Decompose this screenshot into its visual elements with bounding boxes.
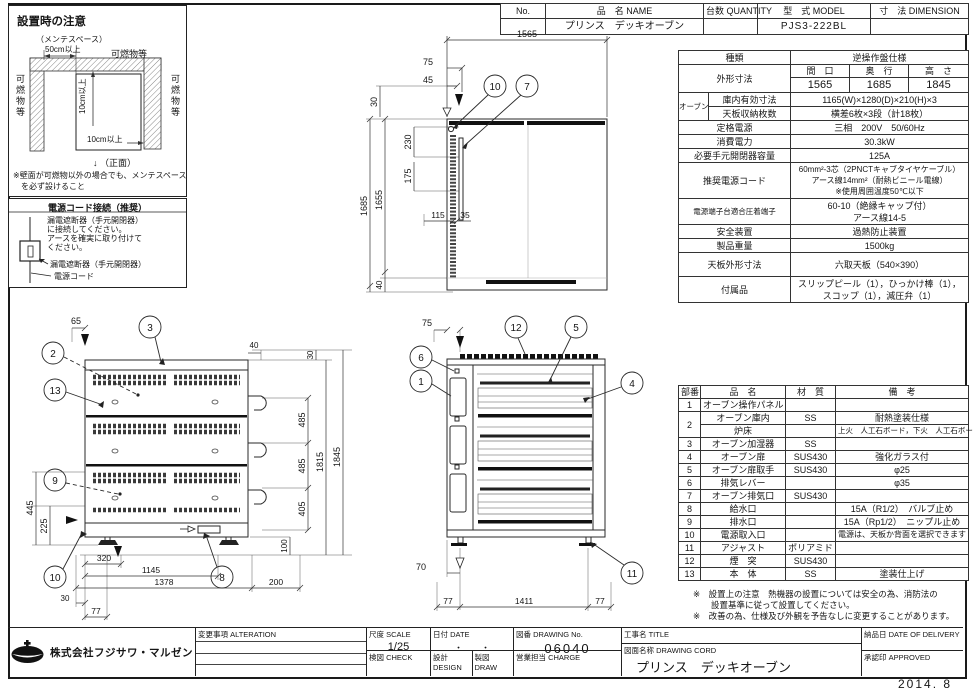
project-title-cell: 工事名 TITLE 図面名称 DRAWING CORD プリンス デッキオーブン [622,628,862,676]
space-50cm-label: 50cm以上 [45,44,81,55]
check-label: 検図 CHECK [367,651,430,664]
parts-header-mat: 材 質 [786,386,836,399]
parts-row-10: 10 電源取入口 電源は、天板か背面を選択できます [679,529,969,542]
company-name: 株式会社フジサワ・マルゼン [50,645,193,660]
spec-weight-label: 製品重量 [679,239,791,253]
company-logo-icon [10,640,46,664]
drawing-no-label: 図番 DRAWING No. [514,628,621,641]
power-cord-box: 電源コード接続（推奨） 漏電遮断器（手元開閉器） に接続してください。 アースを… [8,198,187,288]
spec-weight-value: 1500kg [791,239,969,253]
spec-top-plate-label: 天板外形寸法 [679,253,791,277]
plan-dim-1655: 1655 [374,190,384,210]
header-model: 型 式 MODEL [758,4,871,19]
spec-tray-label: 天板収納枚数 [709,107,791,121]
combustible-right-label: 可燃物等 [169,74,182,118]
front-callout-6: 6 [418,353,424,364]
spec-oven-label: オーブン [679,93,709,121]
spec-accessories-value-2: スコップ（1），減圧弁（1） [793,290,966,302]
rear-callout-10: 10 [49,573,61,584]
date-label: 日付 DATE [431,628,513,641]
parts-row-5: 5 オーブン扉取手 SUS430 φ25 [679,464,969,477]
plan-dim-115: 115 [431,210,445,220]
delivery-label: 納品日 DATE OF DELIVERY [862,628,963,641]
plan-dim-35: 35 [460,210,470,220]
plan-dim-1565: 1565 [517,29,537,39]
install-note-line2: を必ず設けること [21,181,85,192]
note-line-3: ※ 改善の為、仕様及び外観を予告なしに変更することがあります。 [693,611,968,622]
plan-dim-175: 175 [403,168,413,183]
front-dim-77l: 77 [443,596,453,606]
breaker-label: 漏電遮断器（手元開閉器） [50,259,146,270]
power-title: 電源コード接続（推奨） [9,201,186,214]
install-note-line1: ※壁面が可燃物以外の場合でも、メンテスペース [13,170,187,181]
spec-width-value: 1565 [791,78,850,93]
rear-dim-40: 40 [250,341,259,350]
header-qty-value [704,19,758,35]
power-body-4: ください。 [47,242,87,253]
plan-callout-7: 7 [524,82,530,93]
spec-cord-value-2: アース線14mm²（耐熱ビニール電線） [793,175,966,186]
spec-depth-header: 奥 行 [850,65,909,78]
front-view-drawing: 75 70 77 1411 77 12 5 6 1 4 11 [385,312,675,624]
spec-safety-label: 安全装置 [679,225,791,239]
drawing-name-value: プリンス デッキオーブン [622,657,861,676]
combustible-left-label: 可燃物等 [14,74,27,118]
drawing-name-label: 図面名称 DRAWING CORD [622,644,861,657]
design-label: 設計 DESIGN [431,651,472,673]
spec-depth-value: 1685 [850,78,909,93]
rear-dim-485a: 485 [297,412,307,427]
spec-cord-label: 推奨電源コード [679,163,791,199]
spec-breaker-value: 125A [791,149,969,163]
spec-terminal-label: 電源端子台適合圧着端子 [679,199,791,225]
front-dim-77r: 77 [595,596,605,606]
rear-callout-9: 9 [52,476,58,487]
rear-dim-485b: 485 [297,458,307,473]
rear-dim-30-top: 30 [306,350,315,359]
parts-header-name: 品 名 [701,386,786,399]
rear-dim-1845: 1845 [332,447,342,467]
plan-dim-75: 75 [423,57,433,67]
alteration-row-3 [196,664,366,676]
front-callout-12: 12 [510,323,522,334]
alteration-row-1 [196,641,366,653]
rear-view-drawing: 65 40 30 485 485 405 100 1815 1845 445 2… [20,312,365,626]
alteration-row-2 [196,653,366,665]
front-callout-1: 1 [418,377,424,388]
rear-dim-77: 77 [91,606,101,616]
spec-safety-value: 過熱防止装置 [791,225,969,239]
spec-height-header: 高 さ [909,65,969,78]
rear-dim-100: 100 [280,539,289,553]
plan-view-drawing: 1565 75 45 30 1685 1655 40 230 175 115 3… [358,28,670,312]
parts-row-12: 12 煙 突 SUS430 [679,555,969,568]
note-line-2: 設置基準に従って設置してください。 [693,600,968,611]
header-no: No. [501,4,546,19]
space-10cm-vertical-label: 10cm以上 [77,78,88,114]
delivery-cell: 納品日 DATE OF DELIVERY 承認印 APPROVED [862,628,963,676]
rear-callout-2: 2 [50,349,56,360]
rear-dim-1378: 1378 [155,577,174,587]
plan-dim-40: 40 [375,280,384,289]
spec-power-label: 消費電力 [679,135,791,149]
front-callout-5: 5 [573,323,579,334]
general-notes: ※ 設置上の注意 熱機器の設置については安全の為、消防法の 設置基準に従って設置… [693,589,968,622]
project-title-label: 工事名 TITLE [622,628,861,641]
front-callout-11: 11 [627,569,638,580]
front-side-label: ↓ （正面） [93,156,136,169]
parts-row-13: 13 本 体 SS 塗装仕上げ [679,568,969,581]
plan-dim-45: 45 [423,75,433,85]
rear-dim-320: 320 [97,553,111,563]
rear-callout-3: 3 [147,323,153,334]
spec-accessories-value-1: スリップピール（1），ひっかけ棒（1）， [793,278,966,290]
rear-dim-1145: 1145 [142,565,161,575]
spec-top-plate-value: 六取天板（540×390） [791,253,969,277]
front-dim-75: 75 [422,318,432,328]
rear-dim-65: 65 [71,316,81,326]
spec-width-header: 間 口 [791,65,850,78]
parts-table: 部番 品 名 材 質 備 考 1 オーブン操作パネル 2 オーブン庫内 SS 耐… [678,385,969,581]
space-10cm-horizontal-label: 10cm以上 [87,134,123,145]
parts-header-num: 部番 [679,386,701,399]
spec-rated-label: 定格電源 [679,121,791,135]
parts-row-2b: 炉床 上火 人工石ボード，下火 人工石ボード [679,425,969,438]
spec-accessories-label: 付属品 [679,277,791,303]
plan-dim-1685: 1685 [359,196,369,216]
front-dim-70: 70 [416,562,426,572]
spec-dims-label: 外形寸法 [679,65,791,93]
spec-table: 種類 逆操作盤仕様 外形寸法 間 口 奥 行 高 さ 1565 1685 184… [678,50,969,303]
combustible-top-label: 可燃物等 [111,47,147,60]
spec-height-value: 1845 [909,78,969,93]
spec-cord-value-3: ※使用周囲温度50℃以下 [793,186,966,197]
front-callout-4: 4 [629,379,635,390]
scale-check-cell: 尺度 SCALE 1/25 検図 CHECK [367,628,431,676]
spec-terminal-value-1: 60-10（絶縁キャップ付） [793,200,966,212]
model-number: PJS3-222BL [758,19,871,35]
plan-callout-10: 10 [489,82,501,93]
alteration-label: 変更事項 ALTERATION [196,628,366,641]
header-name: 品 名 NAME [546,4,704,19]
spec-kind-label: 種類 [679,51,791,65]
spec-power-value: 30.3kW [791,135,969,149]
rear-dim-200: 200 [269,577,283,587]
plan-dim-230: 230 [403,134,413,149]
rear-dim-445: 445 [25,500,35,515]
spec-breaker-label: 必要手元開閉器容量 [679,149,791,163]
parts-header-note: 備 考 [836,386,969,399]
company-logo-cell: 株式会社フジサワ・マルゼン [8,628,196,676]
parts-row-11: 11 アジャスト ポリアミド [679,542,969,555]
title-block: 株式会社フジサワ・マルゼン 変更事項 ALTERATION 尺度 SCALE 1… [8,627,963,676]
note-line-1: ※ 設置上の注意 熱機器の設置については安全の為、消防法の [693,589,968,600]
rear-dim-30-btm: 30 [61,594,70,603]
plan-dim-30: 30 [369,97,379,107]
install-title: 設置時の注意 [17,13,86,29]
parts-row-4: 4 オーブン扉 SUS430 強化ガラス付 [679,451,969,464]
parts-row-1: 1 オーブン操作パネル [679,399,969,412]
rear-dim-225: 225 [39,518,49,533]
rear-dim-1815: 1815 [315,452,325,472]
installation-note-box: 設置時の注意 （メンテスペース） 50cm以上 可燃物等 可燃物等 可燃物等 1… [8,5,187,197]
drawing-no-cell: 図番 DRAWING No. 06040 営業担当 CHARGE [514,628,622,676]
rear-dim-405: 405 [297,501,307,516]
drawing-sheet: No. 品 名 NAME 台数 QUANTITY 型 式 MODEL 寸 法 D… [0,0,975,692]
parts-row-2a: 2 オーブン庫内 SS 耐熱塗装仕様 [679,412,969,425]
charge-label: 営業担当 CHARGE [514,651,621,664]
date-cell: 日付 DATE ・ ・ 設計 DESIGN 製図 DRAW [431,628,514,676]
power-cord-label: 電源コード [54,271,94,282]
parts-row-6: 6 排気レバー φ35 [679,477,969,490]
rear-callout-8: 8 [219,573,225,584]
spec-kind-value: 逆操作盤仕様 [791,51,969,65]
scale-label: 尺度 SCALE [367,628,430,641]
spec-rated-value: 三相 200V 50/60Hz [791,121,969,135]
alteration-cell: 変更事項 ALTERATION [196,628,367,676]
header-dim-value [871,19,969,35]
spec-terminal-value-2: アース線14-5 [793,212,966,224]
spec-tray-value: 横差6枚×3段（計18枚） [791,107,969,121]
parts-row-3: 3 オーブン加湿器 SS [679,438,969,451]
parts-row-7: 7 オーブン排気口 SUS430 [679,490,969,503]
header-qty: 台数 QUANTITY [704,4,758,19]
approved-label: 承認印 APPROVED [862,651,963,664]
issue-date: 2014. 8 [898,677,952,691]
parts-row-9: 9 排水口 15A（Rp1/2） ニップル止め [679,516,969,529]
rear-callout-13: 13 [49,386,61,397]
spec-inner-value: 1165(W)×1280(D)×210(H)×3 [791,93,969,107]
spec-inner-label: 庫内有効寸法 [709,93,791,107]
header-dim: 寸 法 DIMENSION [871,4,969,19]
spec-cord-value-1: 60mm²-3芯（2PNCTキャブタイヤケーブル） [793,164,966,175]
draw-label: 製図 DRAW [473,651,514,673]
parts-row-8: 8 給水口 15A（R1/2） バルブ止め [679,503,969,516]
front-dim-1411: 1411 [515,596,534,606]
